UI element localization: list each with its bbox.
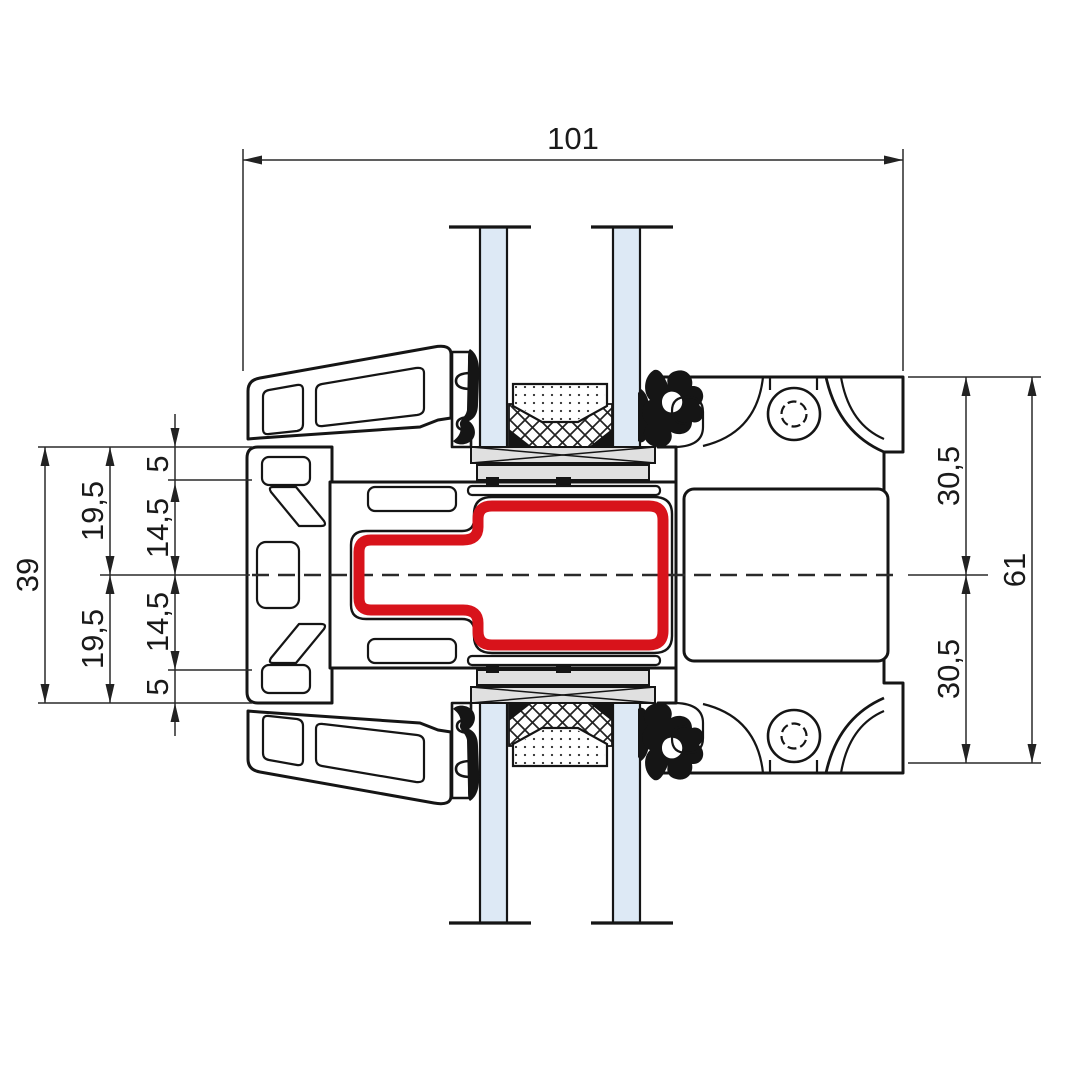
dim-label-wall-top: 5 <box>140 455 175 472</box>
technical-drawing: 101 39 19,5 19,5 5 14,5 14,5 5 30,5 30,5… <box>0 0 1080 1080</box>
dim-label-right-overall: 61 <box>997 553 1032 587</box>
drawing-canvas: 101 39 19,5 19,5 5 14,5 14,5 5 30,5 30,5… <box>0 0 1080 1080</box>
dim-label-left-lower: 19,5 <box>75 609 110 669</box>
dim-label-inner-lower: 14,5 <box>140 592 175 652</box>
dim-label-total-width: 101 <box>547 121 599 156</box>
dim-label-wall-bottom: 5 <box>140 678 175 695</box>
body-chamber-bottom-flat <box>468 656 660 665</box>
bead-chamber-small <box>263 385 303 434</box>
dim-label-right-lower: 30,5 <box>931 639 966 699</box>
support-bar-tab-left <box>486 477 499 485</box>
dim-label-inner-upper: 14,5 <box>140 498 175 558</box>
screw-boss-channel <box>782 402 807 427</box>
left-profile-chamber-bottom <box>262 665 310 693</box>
body-chamber-top-left <box>368 487 456 511</box>
body-chamber-bottom-left <box>368 639 456 663</box>
body-chamber-top-flat <box>468 486 660 495</box>
dim-label-left-overall: 39 <box>10 558 45 592</box>
glass-pane-left <box>480 227 507 462</box>
glass-pane-right <box>613 227 640 462</box>
support-bar-tab-right <box>556 477 571 485</box>
dim-label-left-upper: 19,5 <box>75 481 110 541</box>
dim-label-right-upper: 30,5 <box>931 446 966 506</box>
left-profile-chamber-top <box>262 457 310 485</box>
